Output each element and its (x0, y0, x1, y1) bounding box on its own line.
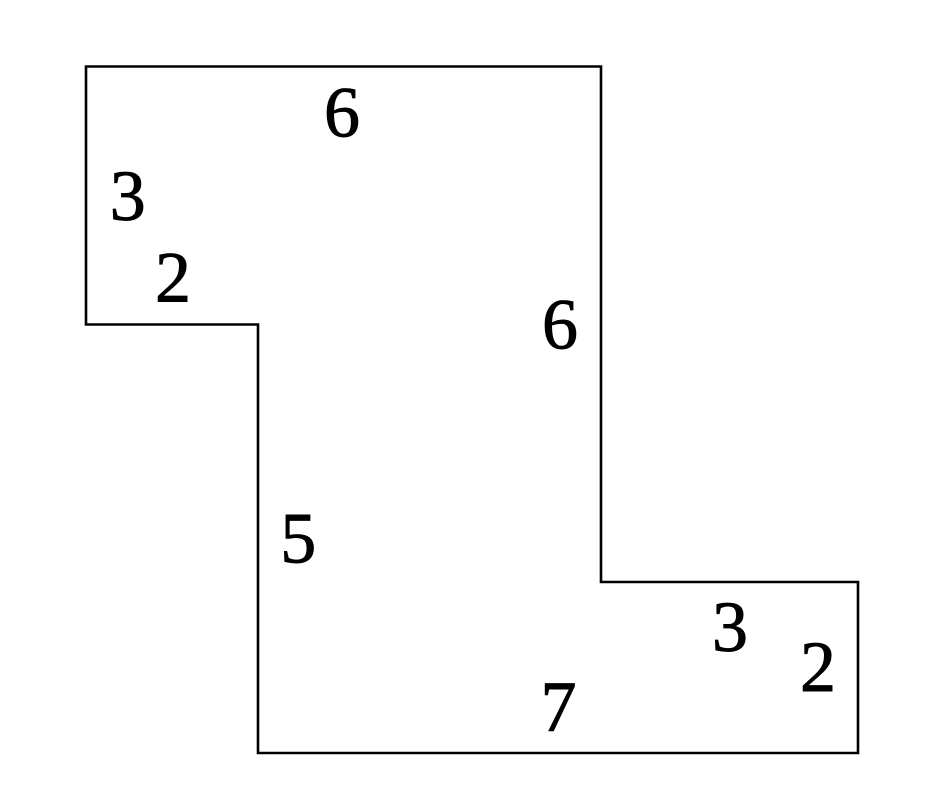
svg-text:3: 3 (712, 587, 748, 667)
svg-text:5: 5 (280, 499, 316, 579)
svg-text:7: 7 (541, 667, 577, 747)
svg-text:2: 2 (800, 627, 836, 707)
svg-text:2: 2 (155, 238, 191, 318)
svg-text:6: 6 (324, 73, 360, 153)
svg-text:3: 3 (110, 156, 146, 236)
svg-text:6: 6 (542, 285, 578, 365)
